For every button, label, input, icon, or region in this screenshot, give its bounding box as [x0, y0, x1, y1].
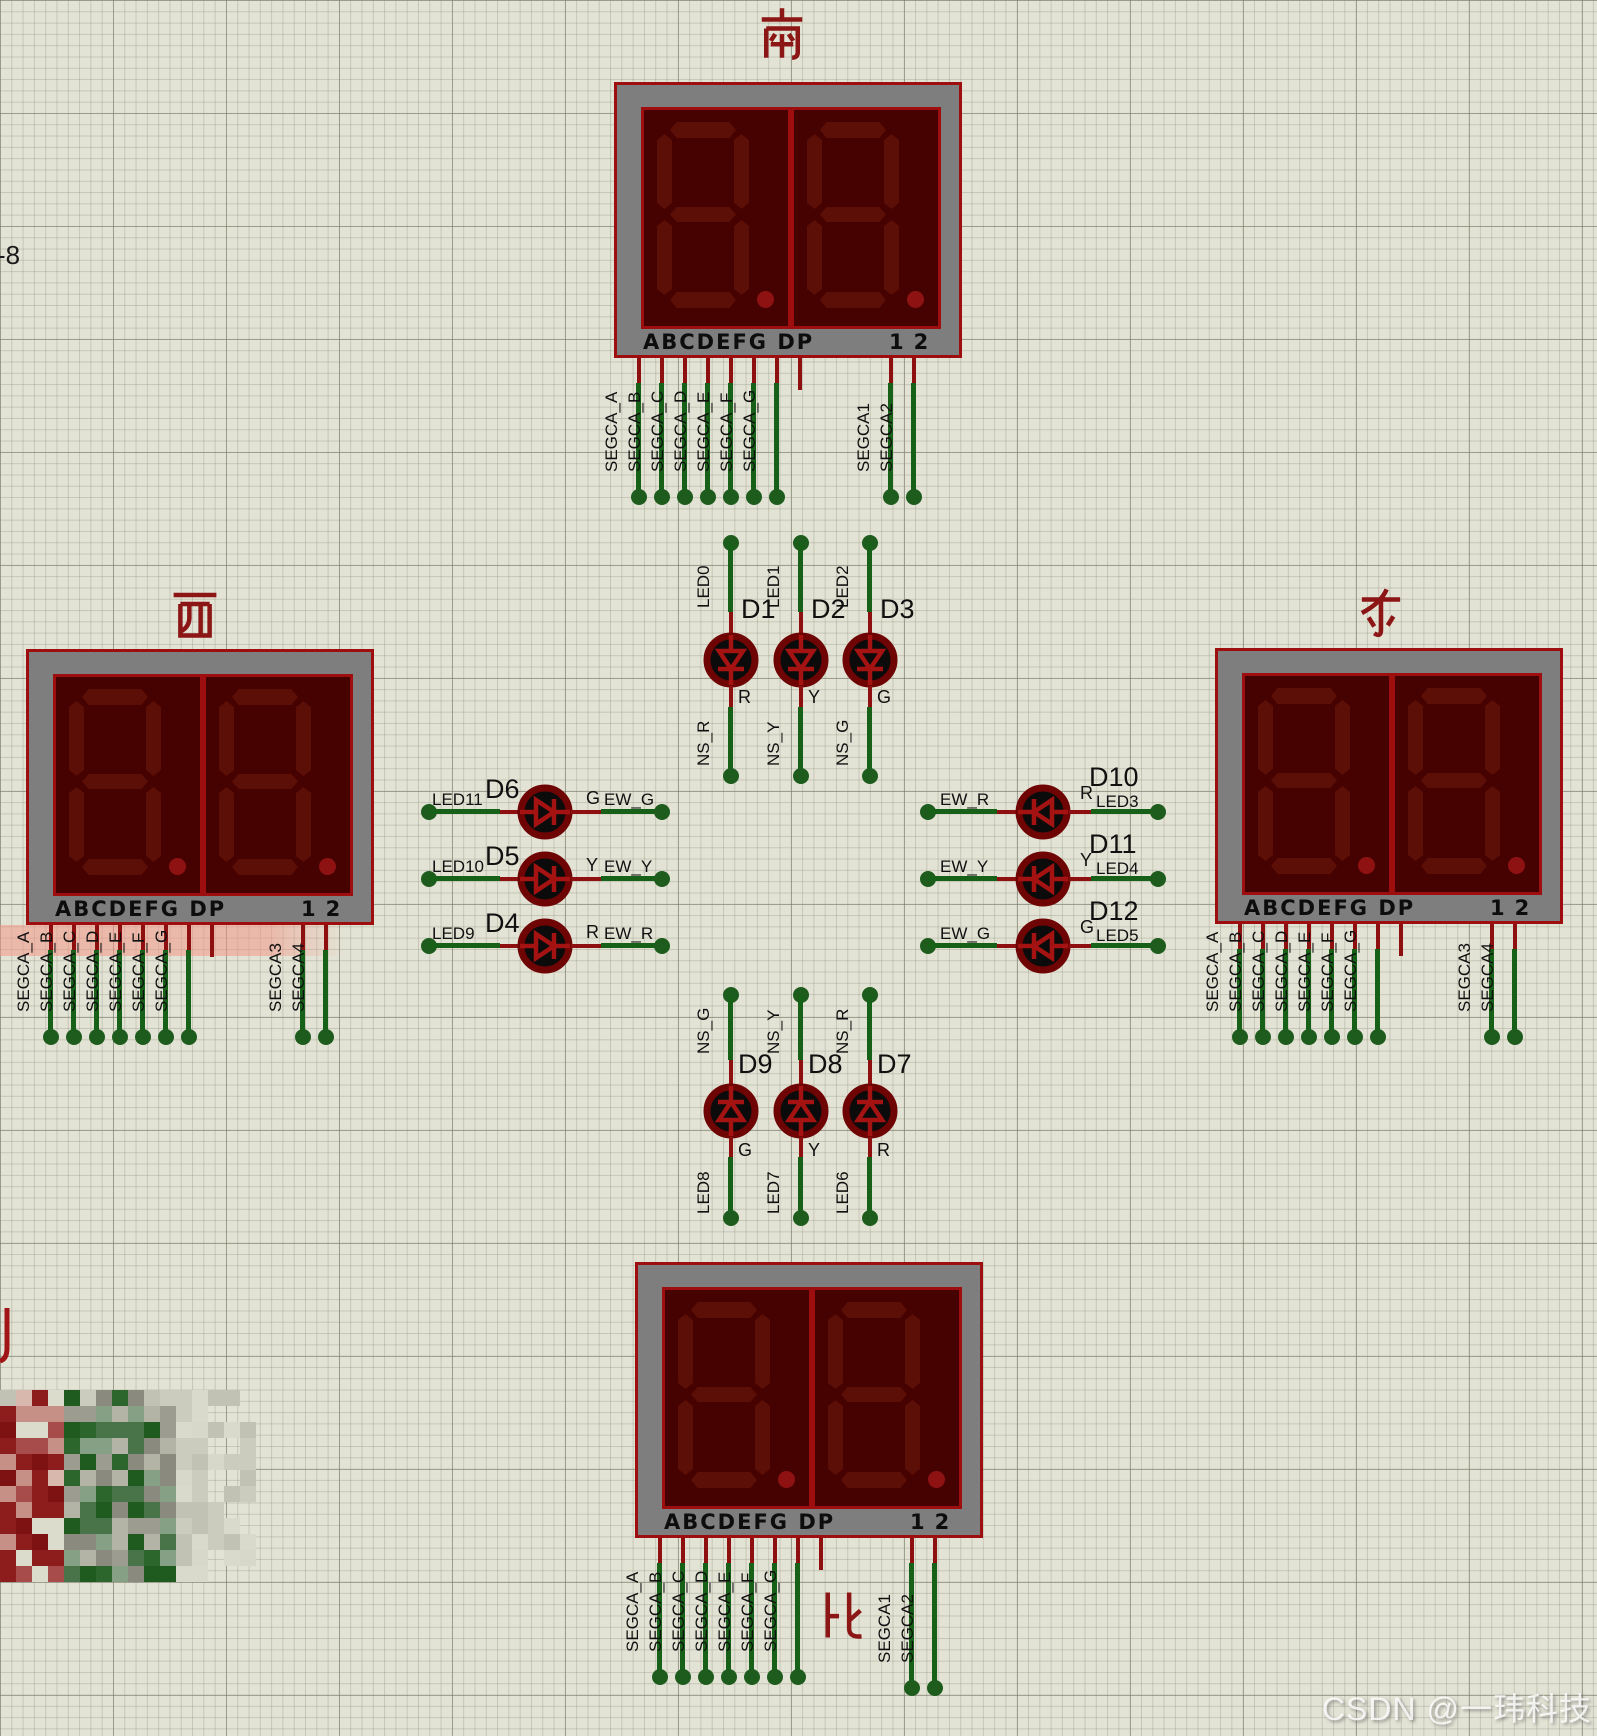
wire-green[interactable] — [867, 995, 872, 1060]
strip-segment-names: ABCDEFG DP — [643, 330, 814, 354]
wire-red[interactable] — [729, 686, 733, 707]
net-label[interactable]: SEGCA_G — [740, 390, 758, 472]
wire-red[interactable] — [571, 877, 601, 881]
segment-b-icon — [296, 701, 311, 776]
net-label[interactable]: SEGCA_G — [152, 930, 170, 1012]
junction-dot — [744, 1669, 760, 1685]
wire-green[interactable] — [728, 1157, 733, 1218]
watermark: CSDN @一玮科技 — [1322, 1684, 1592, 1730]
segment-e-icon — [69, 787, 84, 862]
mosaic-cell — [64, 1422, 80, 1438]
mosaic-cell — [112, 1518, 128, 1534]
mosaic-cell — [224, 1390, 240, 1406]
net-label[interactable]: SEGCA_A — [602, 392, 620, 472]
led-D2[interactable] — [773, 632, 829, 688]
segment-c-icon — [1485, 786, 1500, 861]
segment-a-icon — [670, 122, 736, 138]
mosaic-cell — [0, 1534, 16, 1550]
segment-c-icon — [146, 787, 161, 862]
mosaic-cell — [0, 1422, 16, 1438]
mosaic-cell — [80, 1550, 96, 1566]
net-label[interactable]: LED1 — [764, 565, 782, 608]
wire-red[interactable] — [1069, 944, 1091, 948]
wire-green[interactable] — [728, 707, 733, 776]
part-ref[interactable]: D12 — [1089, 896, 1139, 927]
mosaic-cell — [48, 1550, 64, 1566]
wire-red[interactable] — [868, 1137, 872, 1157]
net-label[interactable]: LED11 — [432, 790, 483, 810]
mosaic-cell — [128, 1406, 144, 1422]
mosaic-cell — [48, 1390, 64, 1406]
strip-segment-names: ABCDEFG DP — [55, 897, 226, 921]
pin-seg-e[interactable] — [729, 358, 733, 383]
segment-b-icon — [905, 1314, 920, 1389]
net-label[interactable]: SEGCA3 — [1455, 943, 1473, 1012]
wire-red[interactable] — [571, 810, 601, 814]
junction-dot — [89, 1029, 105, 1045]
title-south[interactable] — [755, 4, 809, 62]
wire-red[interactable] — [1069, 810, 1091, 814]
wire-green[interactable] — [1375, 949, 1380, 1037]
part-ref[interactable]: D8 — [808, 1049, 843, 1080]
junction-dot — [862, 768, 878, 784]
led-color-letter[interactable]: R — [586, 922, 599, 943]
mosaic-cell — [160, 1406, 176, 1422]
segment-a-icon — [820, 122, 886, 138]
segment-a-icon — [1271, 688, 1337, 704]
net-label[interactable]: SEGCA_D — [692, 1571, 710, 1652]
censored-region — [0, 1390, 256, 1582]
pin-common-2[interactable] — [1513, 924, 1517, 949]
led-color-letter[interactable]: Y — [1080, 850, 1092, 871]
wire-red[interactable] — [729, 612, 733, 634]
net-label[interactable]: EW_R — [604, 924, 653, 944]
net-label[interactable]: LED10 — [432, 857, 484, 877]
mosaic-cell — [192, 1566, 208, 1582]
led-D1[interactable] — [703, 632, 759, 688]
net-label[interactable]: LED6 — [833, 1171, 851, 1214]
net-label[interactable]: SEGCA_G — [761, 1570, 779, 1652]
junction-dot — [927, 1680, 943, 1696]
mosaic-cell — [176, 1566, 192, 1582]
pin-common-2[interactable] — [933, 1538, 937, 1563]
seven-seg-display-east[interactable]: ABCDEFG DP12 — [1215, 648, 1563, 924]
segment-a-icon — [1421, 688, 1487, 704]
segment-e-icon — [1408, 786, 1423, 861]
net-label[interactable]: SEGCA_D — [83, 931, 101, 1012]
mosaic-cell — [16, 1438, 32, 1454]
mosaic-cell — [16, 1566, 32, 1582]
net-label[interactable]: SEGCA4 — [289, 943, 307, 1012]
mosaic-cell — [224, 1422, 240, 1438]
segment-a-icon — [841, 1302, 907, 1318]
segment-e-icon — [1258, 786, 1273, 861]
net-label[interactable]: SEGCA_F — [1318, 933, 1336, 1012]
part-ref[interactable]: D6 — [485, 774, 520, 805]
junction-dot — [904, 1680, 920, 1696]
net-label[interactable]: EW_R — [940, 790, 989, 810]
net-label[interactable]: SEGCA_A — [14, 932, 32, 1012]
net-label[interactable]: SEGCA_B — [37, 932, 55, 1012]
mosaic-cell — [160, 1502, 176, 1518]
part-ref[interactable]: D10 — [1089, 762, 1139, 793]
wire-red[interactable] — [997, 810, 1017, 814]
wire-green[interactable] — [1512, 949, 1517, 1037]
segment-f-icon — [807, 134, 822, 209]
mosaic-cell — [64, 1550, 80, 1566]
seven-seg-display-north[interactable]: ABCDEFG DP12 — [635, 1262, 983, 1538]
part-ref[interactable]: D7 — [877, 1049, 912, 1080]
net-label[interactable]: SEGCA_C — [60, 931, 78, 1012]
net-label[interactable]: SEGCA1 — [875, 1594, 893, 1663]
mosaic-cell — [128, 1566, 144, 1582]
mosaic-cell — [0, 1390, 16, 1406]
mosaic-cell — [48, 1454, 64, 1470]
net-label[interactable]: SEGCA_A — [623, 1572, 641, 1652]
net-label[interactable]: LED3 — [1096, 792, 1139, 812]
mosaic-cell — [208, 1534, 224, 1550]
net-label[interactable]: SEGCA3 — [266, 943, 284, 1012]
part-ref[interactable]: D5 — [485, 841, 520, 872]
led-D6[interactable] — [517, 784, 573, 840]
led-D11[interactable] — [1015, 851, 1071, 907]
segment-b-icon — [1335, 700, 1350, 775]
net-label[interactable]: EW_Y — [604, 857, 652, 877]
net-label[interactable]: SEGCA_C — [669, 1571, 687, 1652]
mosaic-cell — [176, 1406, 192, 1422]
led-D5[interactable] — [517, 851, 573, 907]
pin-seg-c[interactable] — [683, 358, 687, 383]
segment-f-icon — [1408, 700, 1423, 775]
segment-g-icon — [232, 774, 298, 789]
wire-green[interactable] — [728, 543, 733, 612]
net-label[interactable]: SEGCA_A — [1203, 932, 1221, 1012]
digit-panel — [641, 107, 791, 329]
title-west[interactable] — [168, 584, 222, 642]
pin-seg-g[interactable] — [796, 1538, 800, 1563]
segment-d-icon — [670, 292, 736, 308]
pin-seg-g[interactable] — [187, 925, 191, 950]
mosaic-cell — [128, 1390, 144, 1406]
mosaic-cell — [80, 1566, 96, 1582]
junction-dot — [1301, 1029, 1317, 1045]
wire-green[interactable] — [867, 1157, 872, 1218]
mosaic-cell — [224, 1486, 240, 1502]
mosaic-cell — [64, 1438, 80, 1454]
wire-red[interactable] — [729, 1137, 733, 1157]
led-color-letter[interactable]: G — [586, 788, 600, 809]
net-label[interactable]: LED7 — [764, 1171, 782, 1214]
net-label[interactable]: EW_G — [940, 924, 990, 944]
led-color-letter[interactable]: R — [738, 687, 751, 708]
mosaic-cell — [64, 1470, 80, 1486]
pin-common-2[interactable] — [324, 925, 328, 950]
pin-seg-f[interactable] — [773, 1538, 777, 1563]
stray-grid-text[interactable]: -8 — [0, 240, 20, 271]
net-label[interactable]: SEGCA_E — [1295, 932, 1313, 1012]
segment-d-icon — [1421, 858, 1487, 874]
wire-green[interactable] — [186, 950, 191, 1037]
led-color-letter[interactable]: G — [877, 687, 891, 708]
digit-panel — [53, 674, 203, 896]
pin-dp[interactable] — [819, 1538, 823, 1570]
wire-green[interactable] — [867, 707, 872, 776]
led-color-letter[interactable]: G — [1080, 917, 1094, 938]
wire-red[interactable] — [1069, 877, 1091, 881]
mosaic-cell — [176, 1438, 192, 1454]
pin-seg-a[interactable] — [658, 1538, 662, 1563]
net-label[interactable]: NS_Y — [764, 722, 782, 766]
wire-green[interactable] — [795, 1563, 800, 1677]
wire-red[interactable] — [868, 612, 872, 634]
mosaic-cell — [160, 1438, 176, 1454]
junction-dot — [723, 1210, 739, 1226]
led-D9[interactable] — [703, 1083, 759, 1139]
mosaic-cell — [32, 1566, 48, 1582]
segment-g-icon — [1421, 773, 1487, 788]
mosaic-cell — [144, 1454, 160, 1470]
mosaic-cell — [144, 1390, 160, 1406]
junction-dot — [181, 1029, 197, 1045]
mosaic-cell — [128, 1534, 144, 1550]
net-label[interactable]: SEGCA_B — [625, 392, 643, 472]
wire-red[interactable] — [729, 1060, 733, 1085]
title-north[interactable] — [812, 1586, 866, 1644]
mosaic-cell — [176, 1422, 192, 1438]
mosaic-cell — [96, 1566, 112, 1582]
wire-red[interactable] — [799, 612, 803, 634]
junction-dot — [654, 489, 670, 505]
digit-panel — [203, 674, 353, 896]
net-label[interactable]: SEGCA_D — [1272, 931, 1290, 1012]
pin-seg-b[interactable] — [660, 358, 664, 383]
mosaic-cell — [112, 1438, 128, 1454]
segment-d-icon — [820, 292, 886, 308]
segment-d-icon — [1271, 858, 1337, 874]
mosaic-cell — [144, 1534, 160, 1550]
net-label[interactable]: SEGCA_F — [129, 933, 147, 1012]
net-label[interactable]: LED9 — [432, 924, 475, 944]
segment-c-icon — [905, 1400, 920, 1475]
mosaic-cell — [64, 1566, 80, 1582]
mosaic-cell — [144, 1438, 160, 1454]
led-color-letter[interactable]: R — [1080, 783, 1093, 804]
mosaic-cell — [32, 1422, 48, 1438]
net-label[interactable]: LED4 — [1096, 859, 1139, 879]
net-label[interactable]: SEGCA_E — [694, 392, 712, 472]
net-label[interactable]: NS_Y — [764, 1010, 782, 1054]
junction-dot — [1150, 804, 1166, 820]
mosaic-cell — [240, 1534, 256, 1550]
net-label[interactable]: SEGCA_C — [1249, 931, 1267, 1012]
digit-panel — [662, 1287, 812, 1509]
mosaic-cell — [48, 1486, 64, 1502]
mosaic-cell — [192, 1390, 208, 1406]
mosaic-cell — [64, 1390, 80, 1406]
led-D4[interactable] — [517, 918, 573, 974]
pin-seg-e[interactable] — [750, 1538, 754, 1563]
pin-seg-d[interactable] — [706, 358, 710, 383]
pin-dp[interactable] — [210, 925, 214, 957]
mosaic-cell — [112, 1422, 128, 1438]
net-label[interactable]: SEGCA2 — [877, 403, 895, 472]
wire-green[interactable] — [323, 950, 328, 1037]
pin-common-1[interactable] — [889, 358, 893, 383]
wire-red[interactable] — [571, 944, 601, 948]
seven-seg-display-south[interactable]: ABCDEFG DP12 — [614, 82, 962, 358]
mosaic-cell — [64, 1406, 80, 1422]
junction-dot — [1150, 938, 1166, 954]
net-label[interactable]: SEGCA_B — [646, 1572, 664, 1652]
mosaic-cell — [176, 1486, 192, 1502]
mosaic-cell — [32, 1518, 48, 1534]
wire-red[interactable] — [799, 1060, 803, 1085]
mosaic-cell — [192, 1422, 208, 1438]
led-color-letter[interactable]: Y — [586, 855, 598, 876]
mosaic-cell — [224, 1550, 240, 1566]
led-D8[interactable] — [773, 1083, 829, 1139]
mosaic-cell — [112, 1550, 128, 1566]
pin-common-2[interactable] — [912, 358, 916, 383]
net-label[interactable]: SEGCA_E — [106, 932, 124, 1012]
mosaic-cell — [144, 1550, 160, 1566]
net-label[interactable]: EW_G — [604, 790, 654, 810]
pin-seg-f[interactable] — [752, 358, 756, 383]
pin-dp[interactable] — [798, 358, 802, 390]
mosaic-cell — [176, 1518, 192, 1534]
wire-red[interactable] — [799, 1137, 803, 1157]
segment-b-icon — [146, 701, 161, 776]
mosaic-cell — [192, 1502, 208, 1518]
wire-red[interactable] — [868, 686, 872, 707]
mosaic-cell — [96, 1390, 112, 1406]
pin-seg-c[interactable] — [704, 1538, 708, 1563]
wire-red[interactable] — [799, 686, 803, 707]
led-color-letter[interactable]: G — [738, 1140, 752, 1161]
mosaic-cell — [16, 1502, 32, 1518]
led-D3[interactable] — [842, 632, 898, 688]
junction-dot — [158, 1029, 174, 1045]
junction-dot — [1278, 1029, 1294, 1045]
junction-dot — [767, 1669, 783, 1685]
net-label[interactable]: NS_R — [694, 721, 712, 766]
title-east[interactable] — [1354, 584, 1408, 642]
led-D7[interactable] — [842, 1083, 898, 1139]
wire-green[interactable] — [798, 1157, 803, 1218]
net-label[interactable]: LED5 — [1096, 926, 1139, 946]
net-label[interactable]: LED0 — [694, 565, 712, 608]
junction-dot — [1232, 1029, 1248, 1045]
wire-green[interactable] — [774, 383, 779, 497]
mosaic-cell — [208, 1518, 224, 1534]
mosaic-cell — [48, 1518, 64, 1534]
net-label[interactable]: NS_G — [833, 720, 851, 766]
wire-green[interactable] — [798, 707, 803, 776]
led-color-letter[interactable]: Y — [808, 687, 820, 708]
mosaic-cell — [16, 1534, 32, 1550]
junction-dot — [862, 1210, 878, 1226]
part-ref[interactable]: D3 — [880, 594, 915, 625]
pin-common-1[interactable] — [910, 1538, 914, 1563]
wire-green[interactable] — [798, 543, 803, 612]
led-color-letter[interactable]: R — [877, 1140, 890, 1161]
junction-dot — [318, 1029, 334, 1045]
pin-seg-g[interactable] — [775, 358, 779, 383]
mosaic-cell — [48, 1502, 64, 1518]
junction-dot — [1370, 1029, 1386, 1045]
net-label[interactable]: SEGCA_E — [715, 1572, 733, 1652]
wire-red[interactable] — [997, 944, 1017, 948]
mosaic-cell — [224, 1518, 240, 1534]
part-ref[interactable]: D11 — [1089, 829, 1137, 860]
seven-seg-display-west[interactable]: ABCDEFG DP12 — [26, 649, 374, 925]
mosaic-cell — [64, 1518, 80, 1534]
part-ref[interactable]: D9 — [738, 1049, 773, 1080]
mosaic-cell — [112, 1486, 128, 1502]
mosaic-cell — [64, 1486, 80, 1502]
net-label[interactable]: SEGCA_B — [1226, 932, 1244, 1012]
pin-seg-d[interactable] — [727, 1538, 731, 1563]
net-label[interactable]: SEGCA2 — [898, 1594, 916, 1663]
mosaic-cell — [96, 1438, 112, 1454]
mosaic-cell — [48, 1470, 64, 1486]
pin-seg-b[interactable] — [681, 1538, 685, 1563]
mosaic-cell — [80, 1422, 96, 1438]
junction-dot — [1324, 1029, 1340, 1045]
net-label[interactable]: SEGCA_F — [717, 393, 735, 472]
pin-seg-a[interactable] — [637, 358, 641, 383]
mosaic-cell — [96, 1470, 112, 1486]
led-D12[interactable] — [1015, 918, 1071, 974]
net-label[interactable]: SEGCA_G — [1341, 930, 1359, 1012]
wire-green[interactable] — [932, 1563, 937, 1688]
junction-dot — [295, 1029, 311, 1045]
net-label[interactable]: LED8 — [694, 1171, 712, 1214]
net-label[interactable]: LED2 — [833, 565, 851, 608]
net-label[interactable]: SEGCA_F — [738, 1573, 756, 1652]
wire-red[interactable] — [997, 877, 1017, 881]
net-label[interactable]: NS_R — [833, 1009, 851, 1054]
mosaic-cell — [240, 1422, 256, 1438]
wire-red[interactable] — [868, 1060, 872, 1085]
junction-dot — [700, 489, 716, 505]
pin-seg-g[interactable] — [1376, 924, 1380, 949]
mosaic-cell — [192, 1470, 208, 1486]
wire-green[interactable] — [911, 383, 916, 497]
pin-dp[interactable] — [1399, 924, 1403, 956]
wire-green[interactable] — [798, 995, 803, 1060]
part-ref[interactable]: D4 — [485, 908, 520, 939]
wire-green[interactable] — [867, 543, 872, 612]
mosaic-cell — [32, 1390, 48, 1406]
wire-green[interactable] — [728, 995, 733, 1060]
net-label[interactable]: EW_Y — [940, 857, 988, 877]
net-label[interactable]: SEGCA_C — [648, 391, 666, 472]
mosaic-cell — [176, 1390, 192, 1406]
net-label[interactable]: SEGCA4 — [1478, 943, 1496, 1012]
junction-dot — [723, 768, 739, 784]
net-label[interactable]: SEGCA1 — [854, 403, 872, 472]
mosaic-cell — [32, 1550, 48, 1566]
net-label[interactable]: SEGCA_D — [671, 391, 689, 472]
mosaic-cell — [128, 1486, 144, 1502]
mosaic-cell — [112, 1534, 128, 1550]
led-color-letter[interactable]: Y — [808, 1140, 820, 1161]
led-D10[interactable] — [1015, 784, 1071, 840]
net-label[interactable]: NS_G — [694, 1008, 712, 1054]
segment-a-icon — [232, 689, 298, 705]
segment-b-icon — [734, 134, 749, 209]
